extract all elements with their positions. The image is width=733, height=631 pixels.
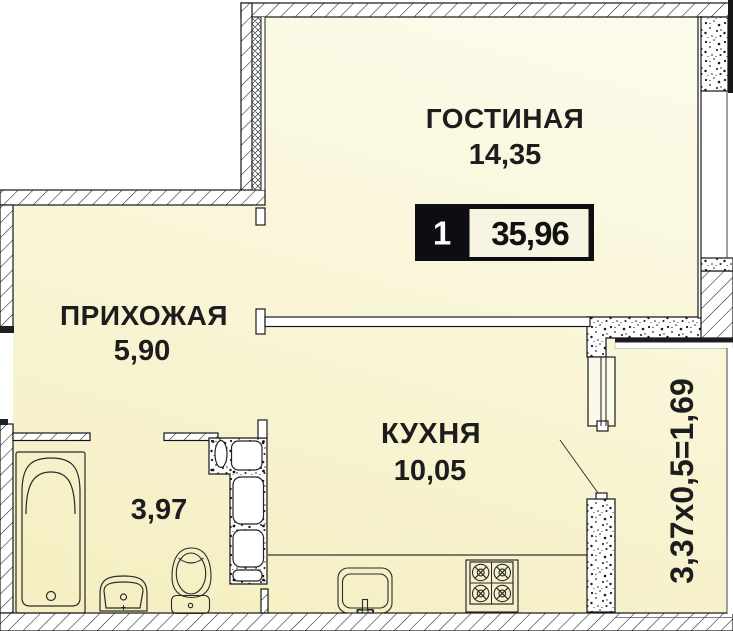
svg-text:10,05: 10,05	[394, 455, 467, 487]
svg-text:35,96: 35,96	[491, 215, 569, 252]
svg-text:5,90: 5,90	[114, 335, 170, 367]
svg-text:КУХНЯ: КУХНЯ	[381, 418, 481, 450]
svg-text:ГОСТИНАЯ: ГОСТИНАЯ	[426, 103, 585, 134]
svg-text:3,97: 3,97	[131, 494, 187, 526]
svg-text:14,35: 14,35	[469, 139, 542, 171]
svg-text:1: 1	[433, 215, 451, 252]
svg-text:ПРИХОЖАЯ: ПРИХОЖАЯ	[60, 300, 228, 331]
svg-text:3,37х0,5=1,69: 3,37х0,5=1,69	[664, 378, 700, 584]
